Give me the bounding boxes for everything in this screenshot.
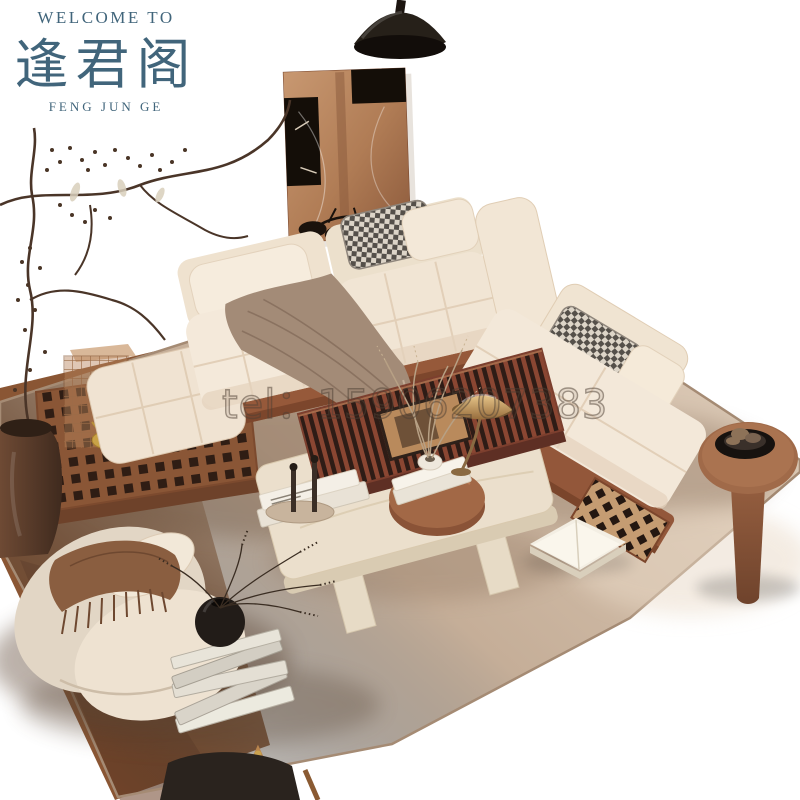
brand-name-english: FENG JUN GE (12, 99, 200, 115)
product-image: WELCOME TO 逢君阁 FENG JUN GE tel：159062073… (0, 0, 800, 800)
phone-watermark: tel：15906207383 (222, 372, 608, 430)
brand-logo: WELCOME TO 逢君阁 FENG JUN GE (12, 8, 200, 115)
brand-welcome-text: WELCOME TO (12, 8, 200, 28)
pendant-lamp (354, 0, 446, 59)
brand-name-chinese: 逢君阁 (12, 37, 200, 94)
clay-vase (0, 419, 62, 558)
